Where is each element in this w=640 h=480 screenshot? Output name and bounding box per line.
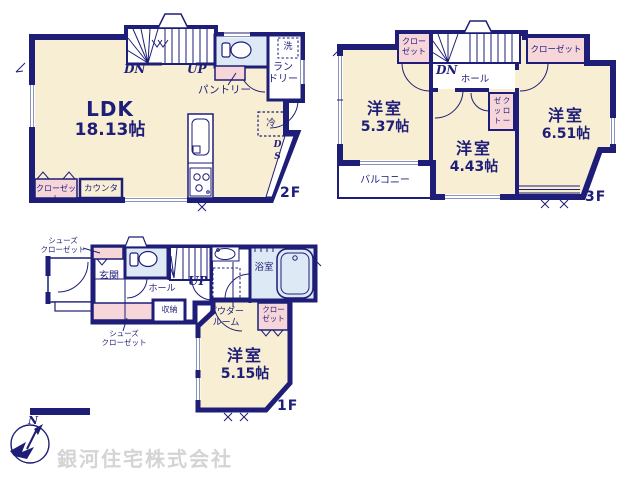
floor3-room2-label: 洋室 (434, 139, 514, 159)
floor3-room1-label: 洋室 (345, 99, 425, 119)
powder-room-label-line1: パウダー (199, 307, 253, 318)
floor1-windows (196, 338, 201, 400)
shoes-closet-label-line2: クローゼット (98, 338, 150, 347)
floor3-hall-label: ホール (452, 74, 498, 86)
floorplan-canvas: LDK 18.13帖 DN UP パントリー ラン ドリー 洗 冷 DS クロー… (0, 0, 640, 480)
floor3-closet-top-left-label: クロー ゼット (397, 37, 431, 57)
ldk-room-size: 18.13帖 (60, 120, 160, 141)
closet-label-line2: ゼット (259, 314, 288, 323)
pantry-label: パントリー (198, 84, 251, 97)
powder-room-label: パウダー ルーム (199, 307, 253, 329)
floor2-dn-label: DN (124, 62, 145, 77)
compass-icon (10, 424, 49, 463)
entrance-porch (48, 256, 93, 311)
floor1-room-size: 5.15帖 (203, 366, 287, 383)
floor1-room-label: 洋室 (203, 346, 287, 366)
company-name: 銀河住宅株式会社 (57, 443, 233, 472)
shoes-shelf-top (93, 247, 123, 259)
floor3-room2-size: 4.43帖 (434, 159, 514, 176)
floor1-up-label: UP (188, 274, 208, 289)
shoes-closet-label-line2: クローゼット (38, 245, 88, 254)
laundry-label-line1: ラン (264, 62, 302, 74)
floor3-closet-middle-label-col2: ゼット (493, 96, 502, 126)
ldk-room-label: LDK (60, 97, 160, 121)
shoes-shelf-bottom (93, 303, 153, 320)
floor1-tick-marks (224, 413, 248, 421)
floor3-room1-size: 5.37帖 (345, 119, 425, 136)
floor3-closet-top-right-label: クローゼット (527, 45, 585, 55)
toilet-icon (130, 253, 138, 266)
floor1-hall-label: ホール (142, 284, 182, 295)
floor2-stairs-icon (127, 14, 215, 64)
washer-label: 洗 (278, 42, 298, 53)
floor3-label: 3F (585, 189, 606, 206)
closet-label-line1: クロー (397, 37, 431, 47)
duct-space-label: DS (273, 139, 282, 163)
floorplan-drawing (0, 0, 640, 480)
powder-room-label-line2: ルーム (199, 318, 253, 329)
fridge-label: 冷 (258, 118, 284, 130)
floor3-room3-size: 6.51帖 (526, 126, 606, 143)
floor2-closet-label: クローゼット (35, 184, 77, 204)
laundry-label-line2: ドリー (264, 74, 302, 86)
floor1-closet-label: クロー ゼット (259, 305, 288, 323)
floor3-stairs-icon (432, 21, 520, 63)
floor1-label: 1F (277, 398, 298, 415)
floor3-room3-label: 洋室 (526, 106, 606, 126)
shoes-closet-bottom-label: シューズ クローゼット (98, 329, 150, 347)
storage-label: 収納 (154, 305, 185, 315)
pantry-shelf (215, 66, 245, 80)
kitchen-icon (188, 114, 213, 198)
floor2-up-label: UP (187, 62, 207, 77)
shoes-closet-label-line1: シューズ (98, 329, 150, 338)
toilet-icon (222, 43, 230, 57)
closet-label-line2: ゼット (397, 47, 431, 57)
floor3-closet-middle-label-col1: クロー (502, 96, 511, 126)
shoes-closet-top-label: シューズ クローゼット (38, 236, 88, 254)
compass-north-label: N (25, 414, 41, 427)
closet-label-line1: クロー (259, 305, 288, 314)
bathroom-label: 浴室 (249, 262, 279, 274)
shoes-closet-label-line1: シューズ (38, 236, 88, 245)
entrance-label: 玄関 (94, 271, 124, 283)
laundry-label: ラン ドリー (264, 62, 302, 86)
balcony-label: バルコニー (349, 175, 421, 187)
floor2-counter-label: カウンター (80, 184, 122, 205)
floor2-label: 2F (280, 185, 301, 202)
